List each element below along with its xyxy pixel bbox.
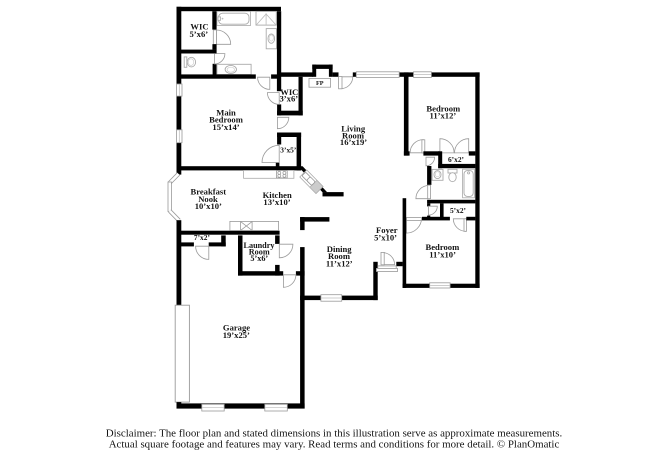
svg-text:11’x12’: 11’x12’	[430, 110, 457, 120]
svg-text:11’x12’: 11’x12’	[326, 258, 353, 268]
svg-text:Actual square footage and feat: Actual square footage and features may v…	[109, 438, 560, 450]
svg-text:5’x10’: 5’x10’	[374, 233, 397, 243]
svg-text:FP: FP	[316, 80, 324, 87]
svg-text:6’x2’: 6’x2’	[448, 155, 464, 164]
svg-text:7’x2’: 7’x2’	[194, 233, 210, 242]
svg-text:15’x14’: 15’x14’	[212, 122, 239, 132]
svg-text:5’x2’: 5’x2’	[450, 206, 466, 215]
svg-text:5’x6’: 5’x6’	[250, 254, 268, 263]
svg-text:3’x5’: 3’x5’	[280, 145, 296, 154]
svg-text:11’x10’: 11’x10’	[429, 249, 456, 259]
svg-text:16’x19’: 16’x19’	[340, 137, 367, 147]
svg-text:19’x25’: 19’x25’	[223, 330, 250, 340]
svg-text:13’x10’: 13’x10’	[263, 197, 290, 207]
svg-text:5’x6’: 5’x6’	[189, 29, 208, 39]
svg-text:10’x10’: 10’x10’	[195, 201, 222, 211]
svg-text:3’x6’: 3’x6’	[279, 94, 298, 104]
